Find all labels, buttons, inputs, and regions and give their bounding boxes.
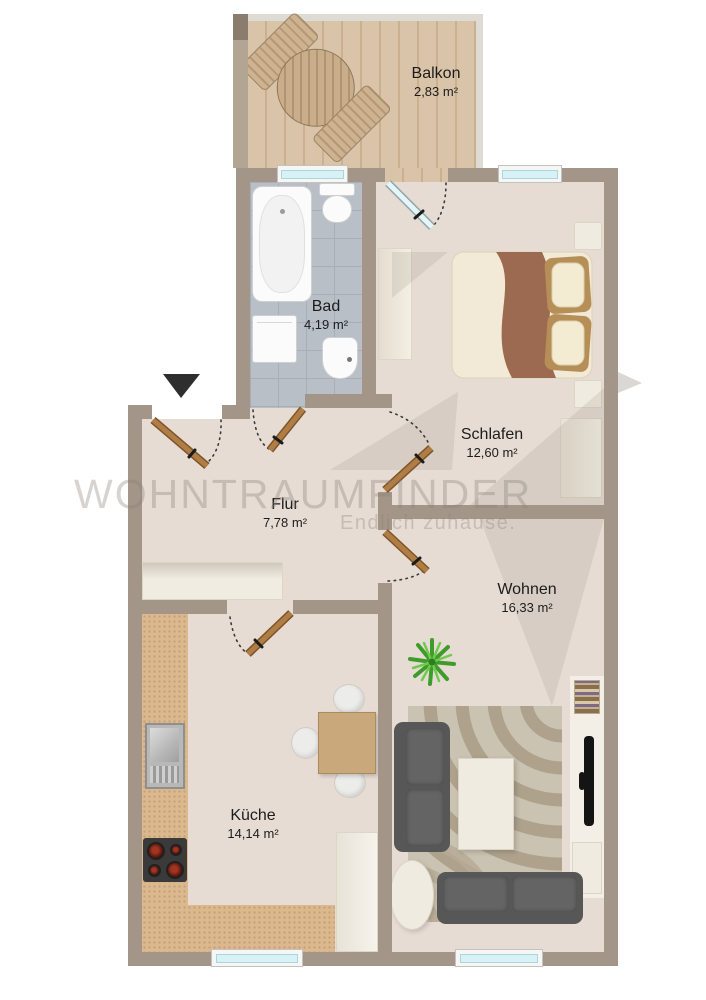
wardrobe (378, 248, 412, 360)
wall (293, 600, 378, 614)
burner (148, 864, 161, 877)
tv (584, 736, 594, 826)
coffee-table (458, 758, 514, 850)
room-name: Schlafen (461, 425, 523, 445)
bathtub-drain (280, 209, 285, 214)
wall (142, 600, 227, 614)
sink-basin (150, 728, 179, 762)
wall (305, 394, 392, 408)
watermark-tagline: Endlich zuhause. (340, 512, 516, 535)
sofa-cushion (512, 876, 577, 912)
sofa-cushion (406, 728, 444, 785)
room-area: 12,60 m² (461, 445, 523, 461)
wall (233, 14, 248, 40)
sofa-cushion (443, 876, 508, 912)
wall (362, 182, 376, 408)
toilet-bowl (322, 195, 352, 223)
burner (147, 842, 165, 860)
bedroom-window (498, 165, 562, 183)
dining-chair (291, 727, 321, 759)
wall (604, 168, 618, 966)
room-area: 2,83 m² (412, 84, 461, 100)
sofa-bottom (437, 872, 583, 924)
burner (166, 861, 184, 879)
dining-chair (333, 684, 365, 714)
wall (233, 40, 248, 168)
window-glass (460, 954, 538, 963)
room-area: 16,33 m² (497, 600, 556, 616)
bathroom-window (277, 165, 348, 183)
room-name: Bad (304, 297, 348, 317)
window-glass (216, 954, 297, 963)
wall (128, 405, 152, 419)
room-label-wohnen: Wohnen 16,33 m² (497, 580, 556, 616)
balcony-edge-top (248, 14, 483, 21)
fridge-cabinet (336, 832, 378, 952)
burner (170, 844, 182, 856)
room-name: Wohnen (497, 580, 556, 600)
window-glass (281, 170, 344, 179)
nightstand-bottom (574, 380, 602, 408)
room-label-bad: Bad 4,19 m² (304, 297, 348, 333)
bathroom-sink (322, 337, 358, 379)
kitchen-window (211, 949, 303, 967)
dining-table (318, 712, 376, 774)
entrance-arrow-icon (163, 374, 200, 398)
sink-drainboard (150, 766, 179, 783)
book-stack (574, 680, 600, 714)
wall (378, 583, 392, 952)
tv-stand (579, 772, 585, 790)
room-name: Balkon (412, 64, 461, 84)
bedroom-dresser (560, 418, 602, 498)
room-label-schlafen: Schlafen 12,60 m² (461, 425, 523, 461)
hallway-sideboard (142, 562, 283, 600)
kitchen-sink (145, 723, 185, 789)
wall (128, 952, 618, 966)
balcony-edge-right (476, 21, 483, 168)
wall (236, 168, 250, 419)
watermark-brand: WOHNTRAUMFINDER (74, 471, 532, 518)
side-table-oval (390, 860, 434, 930)
window-glass (502, 170, 559, 179)
sofa-cushion (406, 789, 444, 846)
floor-plan: Balkon 2,83 m² Bad 4,19 m² Schlafen 12,6… (0, 0, 706, 1000)
bathtub (252, 186, 312, 302)
room-area: 14,14 m² (227, 826, 278, 842)
balcony-door-threshold (385, 168, 448, 182)
room-name: Küche (227, 806, 278, 826)
sink-drain (347, 357, 352, 362)
room-label-balkon: Balkon 2,83 m² (412, 64, 461, 100)
washing-machine (252, 315, 297, 363)
living-room-window (455, 949, 543, 967)
sofa-left (394, 722, 450, 852)
nightstand-top (574, 222, 602, 250)
kitchen-counter-bottom (142, 905, 335, 952)
stove-cooktop (143, 838, 187, 882)
room-area: 4,19 m² (304, 317, 348, 333)
room-label-kueche: Küche 14,14 m² (227, 806, 278, 842)
